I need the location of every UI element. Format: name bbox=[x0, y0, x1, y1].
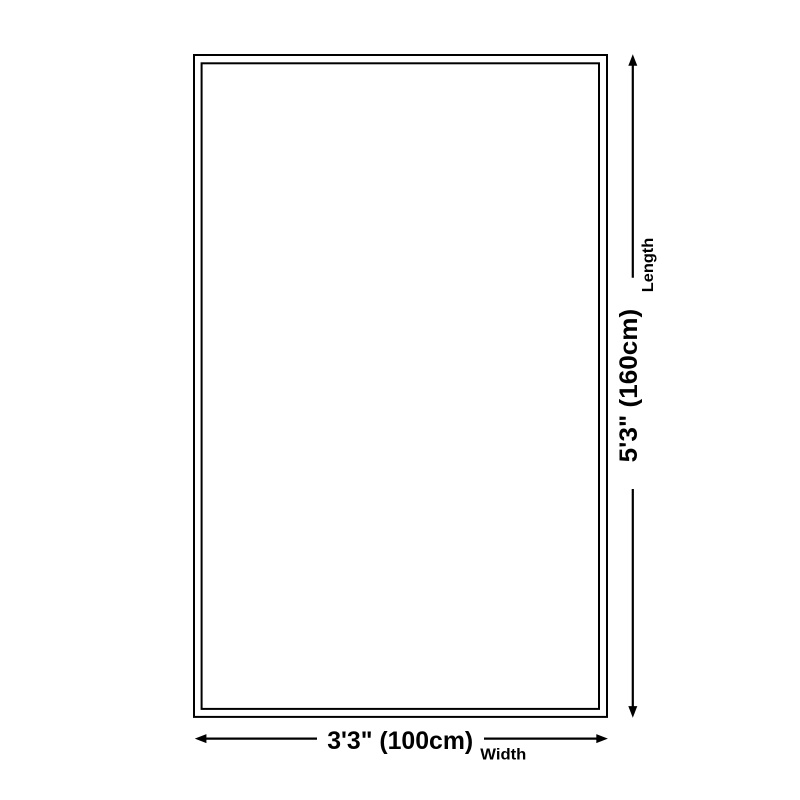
svg-text:3'3" (100cm): 3'3" (100cm) bbox=[327, 727, 473, 755]
svg-text:Length: Length bbox=[640, 238, 657, 293]
svg-text:Width: Width bbox=[480, 747, 526, 764]
svg-text:5'3" (160cm): 5'3" (160cm) bbox=[615, 309, 643, 463]
